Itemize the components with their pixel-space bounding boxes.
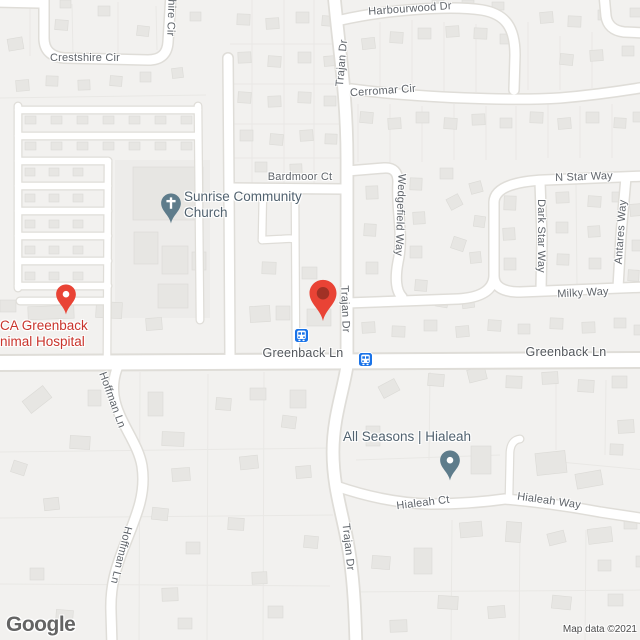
poi-marker-church[interactable]: [160, 193, 182, 224]
road-label-n-star-way: N Star Way: [555, 170, 613, 184]
map-canvas[interactable]: Crestshire Cir shire Cir Harbourwood Dr …: [0, 0, 640, 640]
road-label-bardmoor-ct: Bardmoor Ct: [268, 171, 333, 183]
road-label-crestshire-cir: Crestshire Cir: [50, 52, 120, 64]
road-label-dark-star-way: Dark Star Way: [535, 199, 547, 273]
poi-label-line: nimal Hospital: [0, 334, 88, 350]
transit-stop-icon[interactable]: [294, 328, 309, 343]
road-label-greenback-ln-right: Greenback Ln: [526, 345, 607, 359]
poi-marker-animal-hospital[interactable]: [55, 284, 77, 315]
road-label-trajan-dr-mid: Trajan Dr: [338, 285, 352, 333]
poi-marker-all-seasons[interactable]: [439, 450, 461, 481]
road-label-shire-cir: shire Cir: [164, 0, 177, 37]
destination-pin[interactable]: [308, 279, 338, 322]
poi-label-all-seasons-hialeah[interactable]: All Seasons | Hialeah: [343, 429, 471, 445]
road-label-greenback-ln-left: Greenback Ln: [263, 346, 344, 360]
poi-label-line: All Seasons | Hialeah: [343, 429, 471, 445]
poi-label-animal-hospital[interactable]: CA Greenback nimal Hospital: [0, 318, 88, 349]
transit-stop-icon[interactable]: [358, 352, 373, 367]
poi-label-line: CA Greenback: [0, 318, 88, 334]
poi-label-line: Church: [184, 205, 302, 221]
map-attribution: Map data ©2021: [563, 624, 637, 635]
poi-label-sunrise-community-church[interactable]: Sunrise Community Church: [184, 189, 302, 220]
poi-label-line: Sunrise Community: [184, 189, 302, 205]
google-logo[interactable]: Google: [6, 613, 75, 637]
